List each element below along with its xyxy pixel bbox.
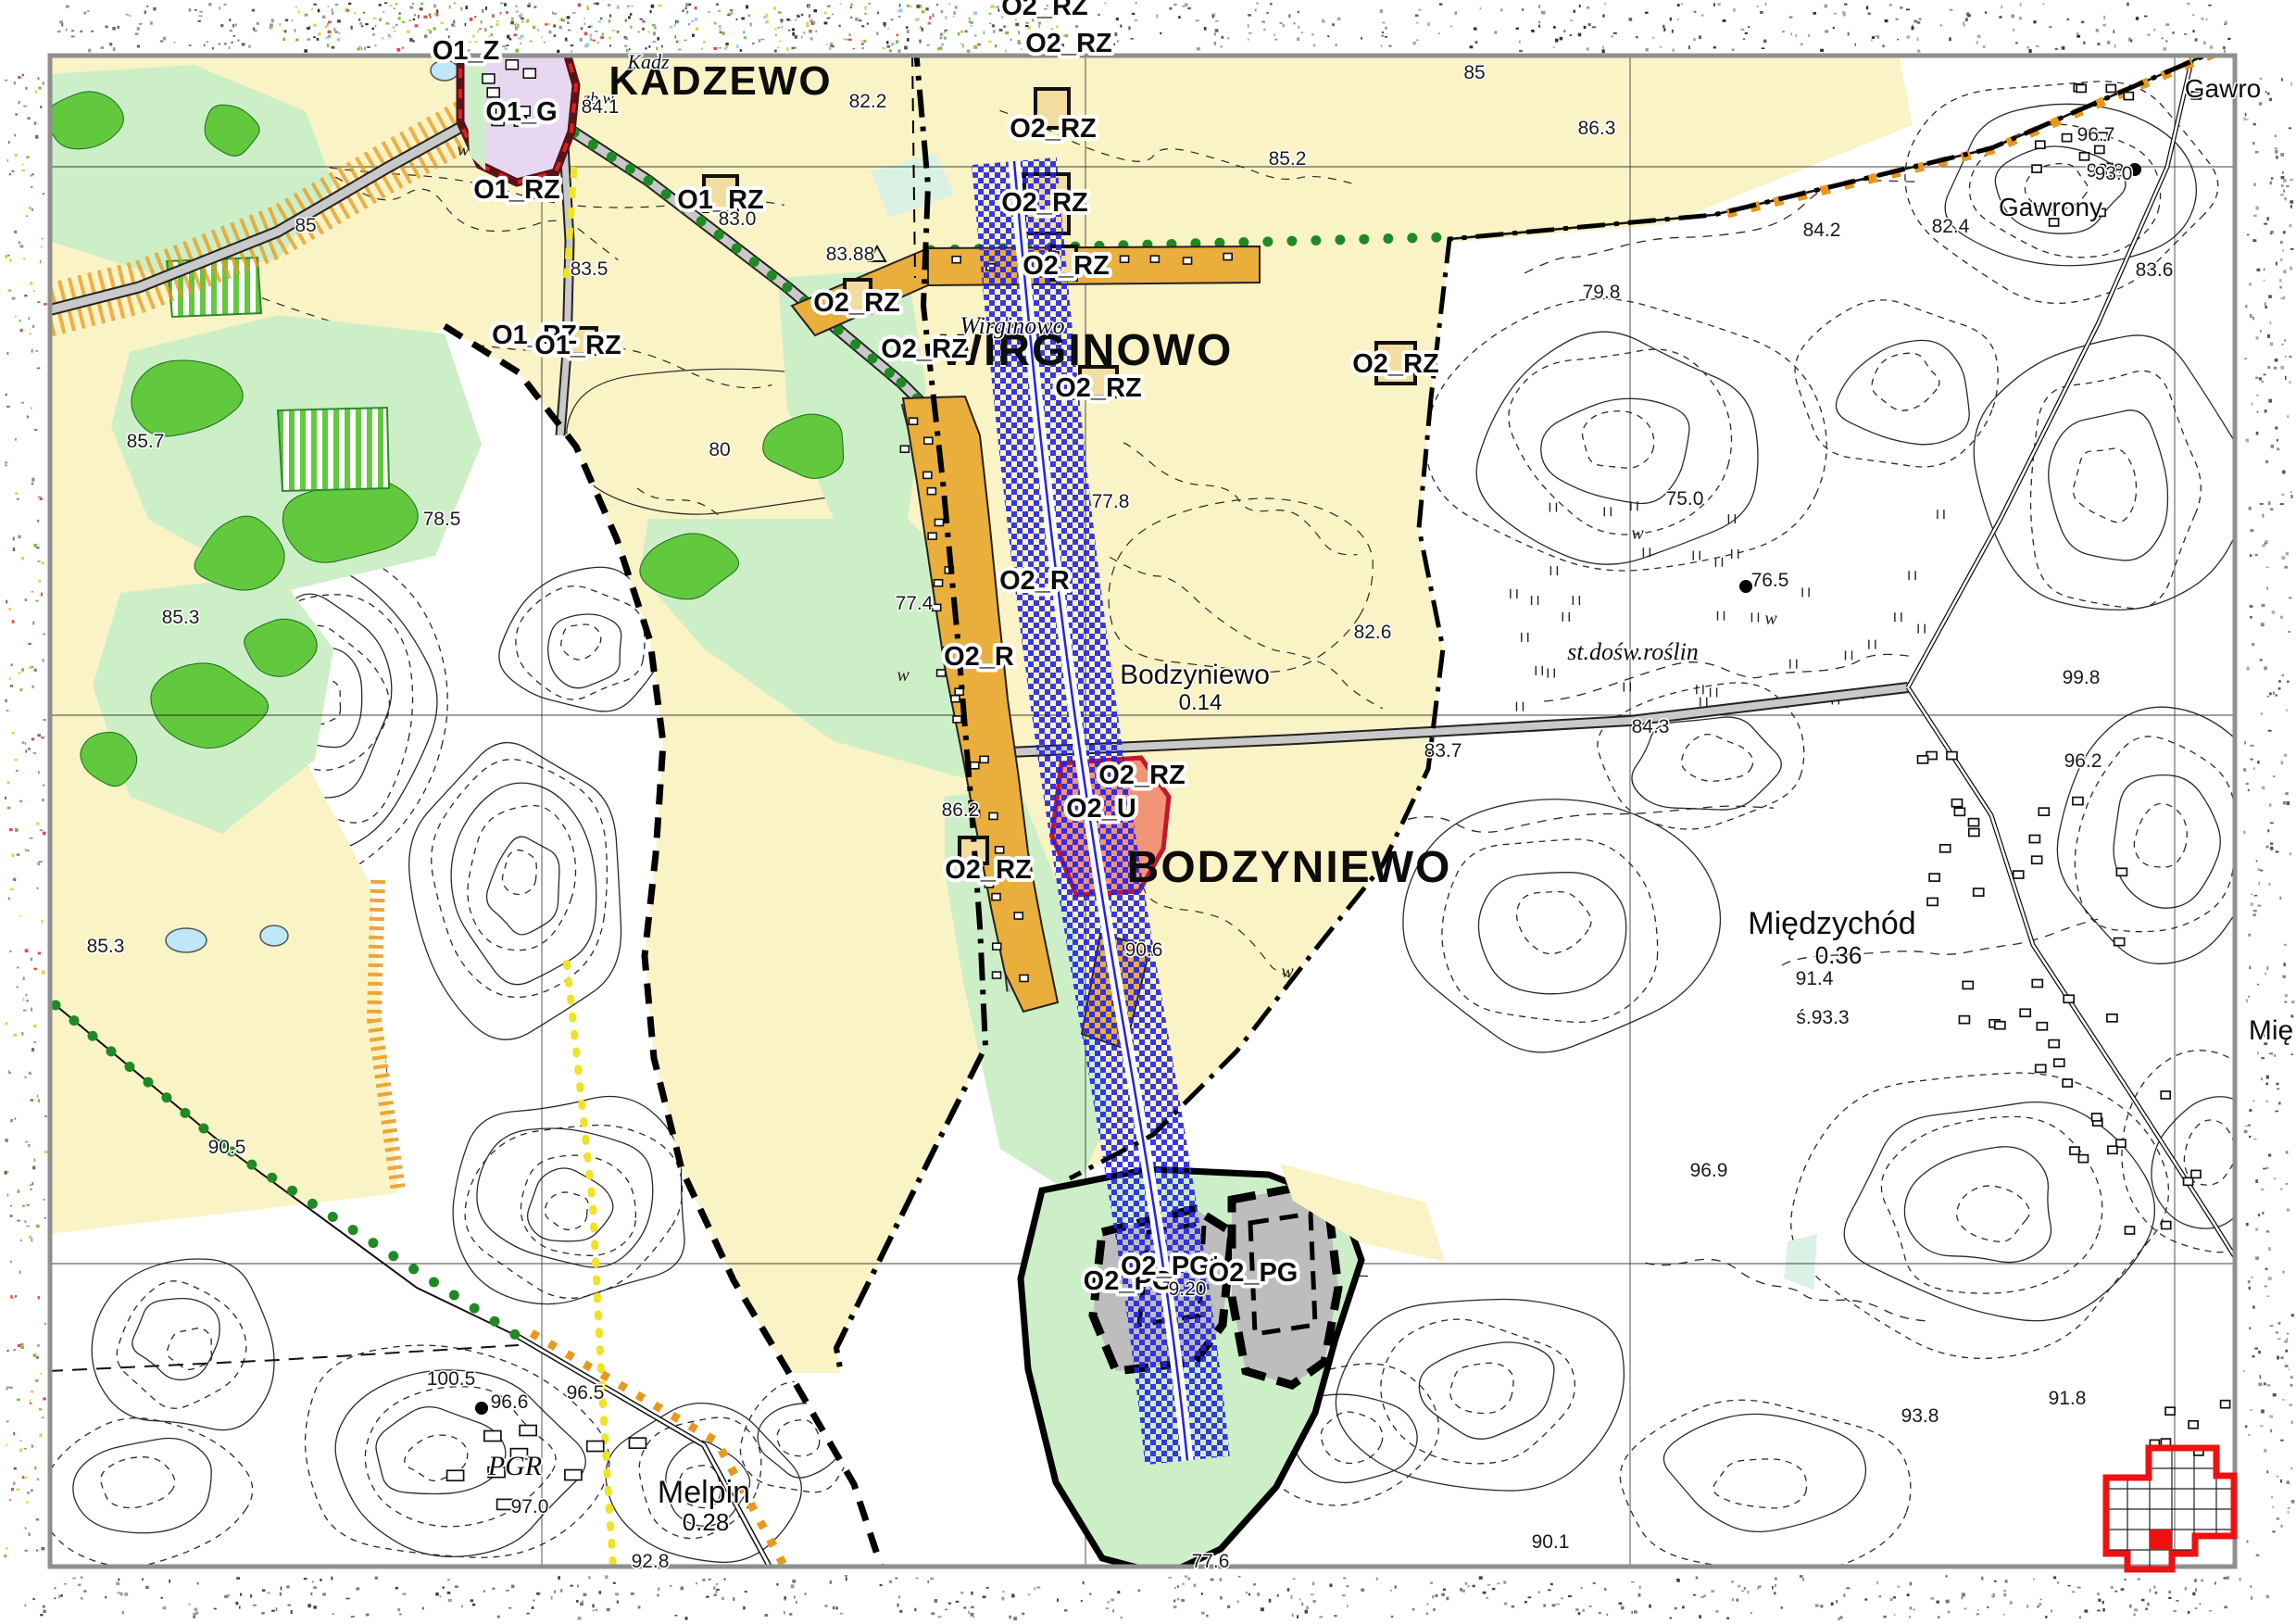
- town-label: 0.36: [1815, 941, 1863, 969]
- map-sheet: KADZEWOWIRGINOWOBODZYNIEWOGawronyGawroMi…: [0, 0, 2296, 1624]
- elevation-label: 96.6: [491, 1391, 529, 1413]
- tree-row-dot: [106, 1046, 116, 1056]
- elevation-label: 77.4: [896, 593, 934, 614]
- zone-label: O2_RZ: [813, 288, 899, 318]
- elevation-label: 90.6: [1125, 939, 1163, 961]
- tree-row-dot: [388, 1251, 398, 1261]
- elevation-label: 96.7: [2077, 124, 2115, 145]
- tree-row-dot: [69, 1015, 79, 1026]
- tree-row-dot: [87, 1031, 97, 1041]
- zone-label: O2_R: [944, 642, 1014, 672]
- tree-row-dot: [588, 140, 598, 150]
- tree-row-dot: [1431, 233, 1441, 243]
- tree-row-dot: [625, 164, 635, 174]
- elevation-label: 76.5: [1751, 570, 1789, 591]
- elevation-label: 85.2: [1269, 148, 1307, 170]
- elevation-label: 83.5: [571, 258, 609, 280]
- elevation-label: 90.5: [208, 1137, 246, 1158]
- tree-row-dot: [1335, 234, 1345, 245]
- zone-label: O2_RZ: [1025, 29, 1111, 58]
- elevation-label: 85.7: [127, 431, 165, 452]
- zone-label: O2_PG: [1209, 1258, 1299, 1288]
- tree-row-dot: [287, 1186, 297, 1196]
- elevation-label: 85.3: [87, 936, 125, 957]
- zone-label: O2_RZ: [1023, 251, 1109, 281]
- zone-label: O2_RZ: [1098, 761, 1185, 790]
- water-mark: w: [1281, 962, 1294, 982]
- elevation-label: 82.4: [1932, 216, 1970, 237]
- zone-label: O2_RZ: [945, 855, 1031, 885]
- elevation-label: 92.8: [632, 1551, 670, 1572]
- elevation-label: 97.0: [511, 1496, 549, 1517]
- tree-row-dot: [1359, 234, 1369, 245]
- elevation-label: 83.6: [2136, 259, 2174, 281]
- elevation-label: 82.6: [1354, 622, 1392, 643]
- elevation-label: 83.0: [719, 208, 757, 230]
- tree-row-dot: [696, 216, 707, 226]
- map-title-bodzyniewo: BODZYNIEWO: [1127, 843, 1452, 892]
- elevation-label: ś.93.3: [1796, 1007, 1849, 1028]
- elevation-label: 100.5: [427, 1368, 476, 1390]
- elevation-label: 80: [709, 439, 730, 460]
- tree-row-dot: [198, 1123, 208, 1133]
- tree-row-dot: [267, 1173, 277, 1183]
- elevation-label: 91.4: [1796, 968, 1834, 989]
- tree-row-dot: [161, 1092, 171, 1102]
- tree-row-dot: [644, 176, 654, 186]
- elevation-label: 93.8: [1901, 1405, 1939, 1427]
- elevation-label: 77.8: [1092, 491, 1130, 512]
- zone-label: O2_U: [1066, 794, 1136, 824]
- tree-row-dot: [348, 1225, 358, 1235]
- elevation-label: 84.2: [1803, 220, 1841, 241]
- tree-row-dot: [246, 1160, 257, 1170]
- zone-label: O2_RZ: [1010, 114, 1096, 144]
- zone-label: O2_RZ: [1001, 188, 1087, 218]
- elevation-label: 96.5: [567, 1382, 605, 1404]
- tree-row-dot: [868, 354, 878, 364]
- town-label: PGR: [487, 1451, 542, 1481]
- tree-row-dot: [767, 271, 777, 281]
- water-mark: w: [457, 140, 470, 160]
- elevation-label: 83.88: [826, 244, 875, 265]
- town-label: Gawrony: [1999, 193, 2102, 221]
- tree-row-dot: [449, 1290, 459, 1301]
- town-label: Gawro: [2185, 74, 2261, 103]
- current-sheet-cell: [2150, 1530, 2172, 1550]
- elevation-label: 79.8: [1583, 282, 1621, 303]
- elevation-label: 85: [295, 215, 316, 236]
- elevation-label: 77.6: [1192, 1551, 1230, 1572]
- tree-row-dot: [714, 230, 724, 240]
- elevation-label: 78.5: [423, 509, 461, 530]
- zone-label: O1_RZ: [473, 175, 559, 205]
- town-label: Mię: [2249, 1015, 2293, 1046]
- elevation-label: 75.0: [1666, 488, 1704, 510]
- town-label: Bodzyniewo: [1120, 660, 1270, 690]
- elevation-label: 85.3: [162, 607, 200, 628]
- tree-row-dot: [783, 283, 793, 293]
- tree-row-dot: [124, 1062, 134, 1072]
- elevation-label: 82.2: [849, 91, 887, 112]
- zone-label: O1_RZ: [534, 331, 621, 360]
- tree-row-dot: [607, 152, 617, 162]
- zone-label: O2_RZ: [1001, 0, 1087, 21]
- tree-row-dot: [328, 1212, 338, 1222]
- water-mark: w: [897, 665, 910, 686]
- water-mark: w: [1631, 523, 1644, 544]
- town-label: Międzychód: [1748, 906, 1915, 941]
- elevation-label: 96.2: [2064, 750, 2102, 772]
- tree-row-dot: [850, 339, 860, 349]
- zone-label: O2_RZ: [1055, 373, 1141, 403]
- tree-row-dot: [490, 1316, 500, 1327]
- tree-row-dot: [429, 1277, 439, 1287]
- tree-row-dot: [470, 1303, 480, 1314]
- map-canvas: KADZEWOWIRGINOWOBODZYNIEWOGawronyGawroMi…: [0, 0, 2296, 1624]
- zone-label: O1_Z: [433, 36, 500, 66]
- elevation-label: 84.1: [582, 96, 620, 118]
- town-label: 0.28: [683, 1508, 730, 1536]
- town-label: st.dośw.roślin: [1567, 638, 1699, 665]
- tree-row-dot: [509, 1329, 520, 1340]
- tree-row-dot: [307, 1199, 318, 1209]
- elevation-label: 86.2: [942, 799, 980, 821]
- town-label: 0.14: [1179, 690, 1223, 715]
- tree-row-dot: [897, 378, 907, 388]
- tree-row-dot: [732, 244, 742, 254]
- tree-row-dot: [368, 1238, 378, 1248]
- tree-row-dot: [143, 1077, 153, 1088]
- tree-row-dot: [408, 1264, 419, 1274]
- elevation-label: 84.3: [1632, 716, 1670, 737]
- zone-label: O2_RZ: [1352, 349, 1438, 379]
- zone-label: O2_RZ: [881, 334, 967, 364]
- town-label: Kadz: [626, 50, 670, 73]
- elevation-label: 90.1: [1532, 1531, 1570, 1553]
- tree-row-dot: [1286, 236, 1297, 246]
- town-label: Melpin: [658, 1475, 750, 1510]
- elevation-label: 85: [1463, 62, 1485, 83]
- elevation-label: 99.8: [2063, 667, 2101, 688]
- zone-label: O2_R: [999, 566, 1070, 596]
- town-label: Wirginowo: [960, 312, 1064, 339]
- elevation-label: 93.0: [2095, 163, 2133, 184]
- water-mark: w: [1764, 609, 1777, 629]
- tree-row-dot: [885, 368, 895, 378]
- elevation-label: 96.9: [1690, 1160, 1728, 1181]
- zone-label: O2_PG*: [1121, 1252, 1222, 1281]
- tree-row-dot: [1262, 236, 1273, 246]
- tree-row-dot: [1407, 233, 1417, 243]
- elevation-label: 9.20: [1169, 1278, 1207, 1300]
- tree-row-dot: [1383, 233, 1393, 244]
- elevation-label: 86.3: [1578, 118, 1616, 139]
- elevation-label: 83.7: [1424, 740, 1462, 762]
- tree-row-dot: [661, 189, 671, 199]
- tree-row-dot: [1311, 235, 1321, 245]
- zone-label: O1_G: [485, 97, 557, 127]
- tree-row-dot: [749, 257, 759, 267]
- tree-row-dot: [180, 1108, 190, 1118]
- elevation-label: 91.8: [2049, 1388, 2087, 1409]
